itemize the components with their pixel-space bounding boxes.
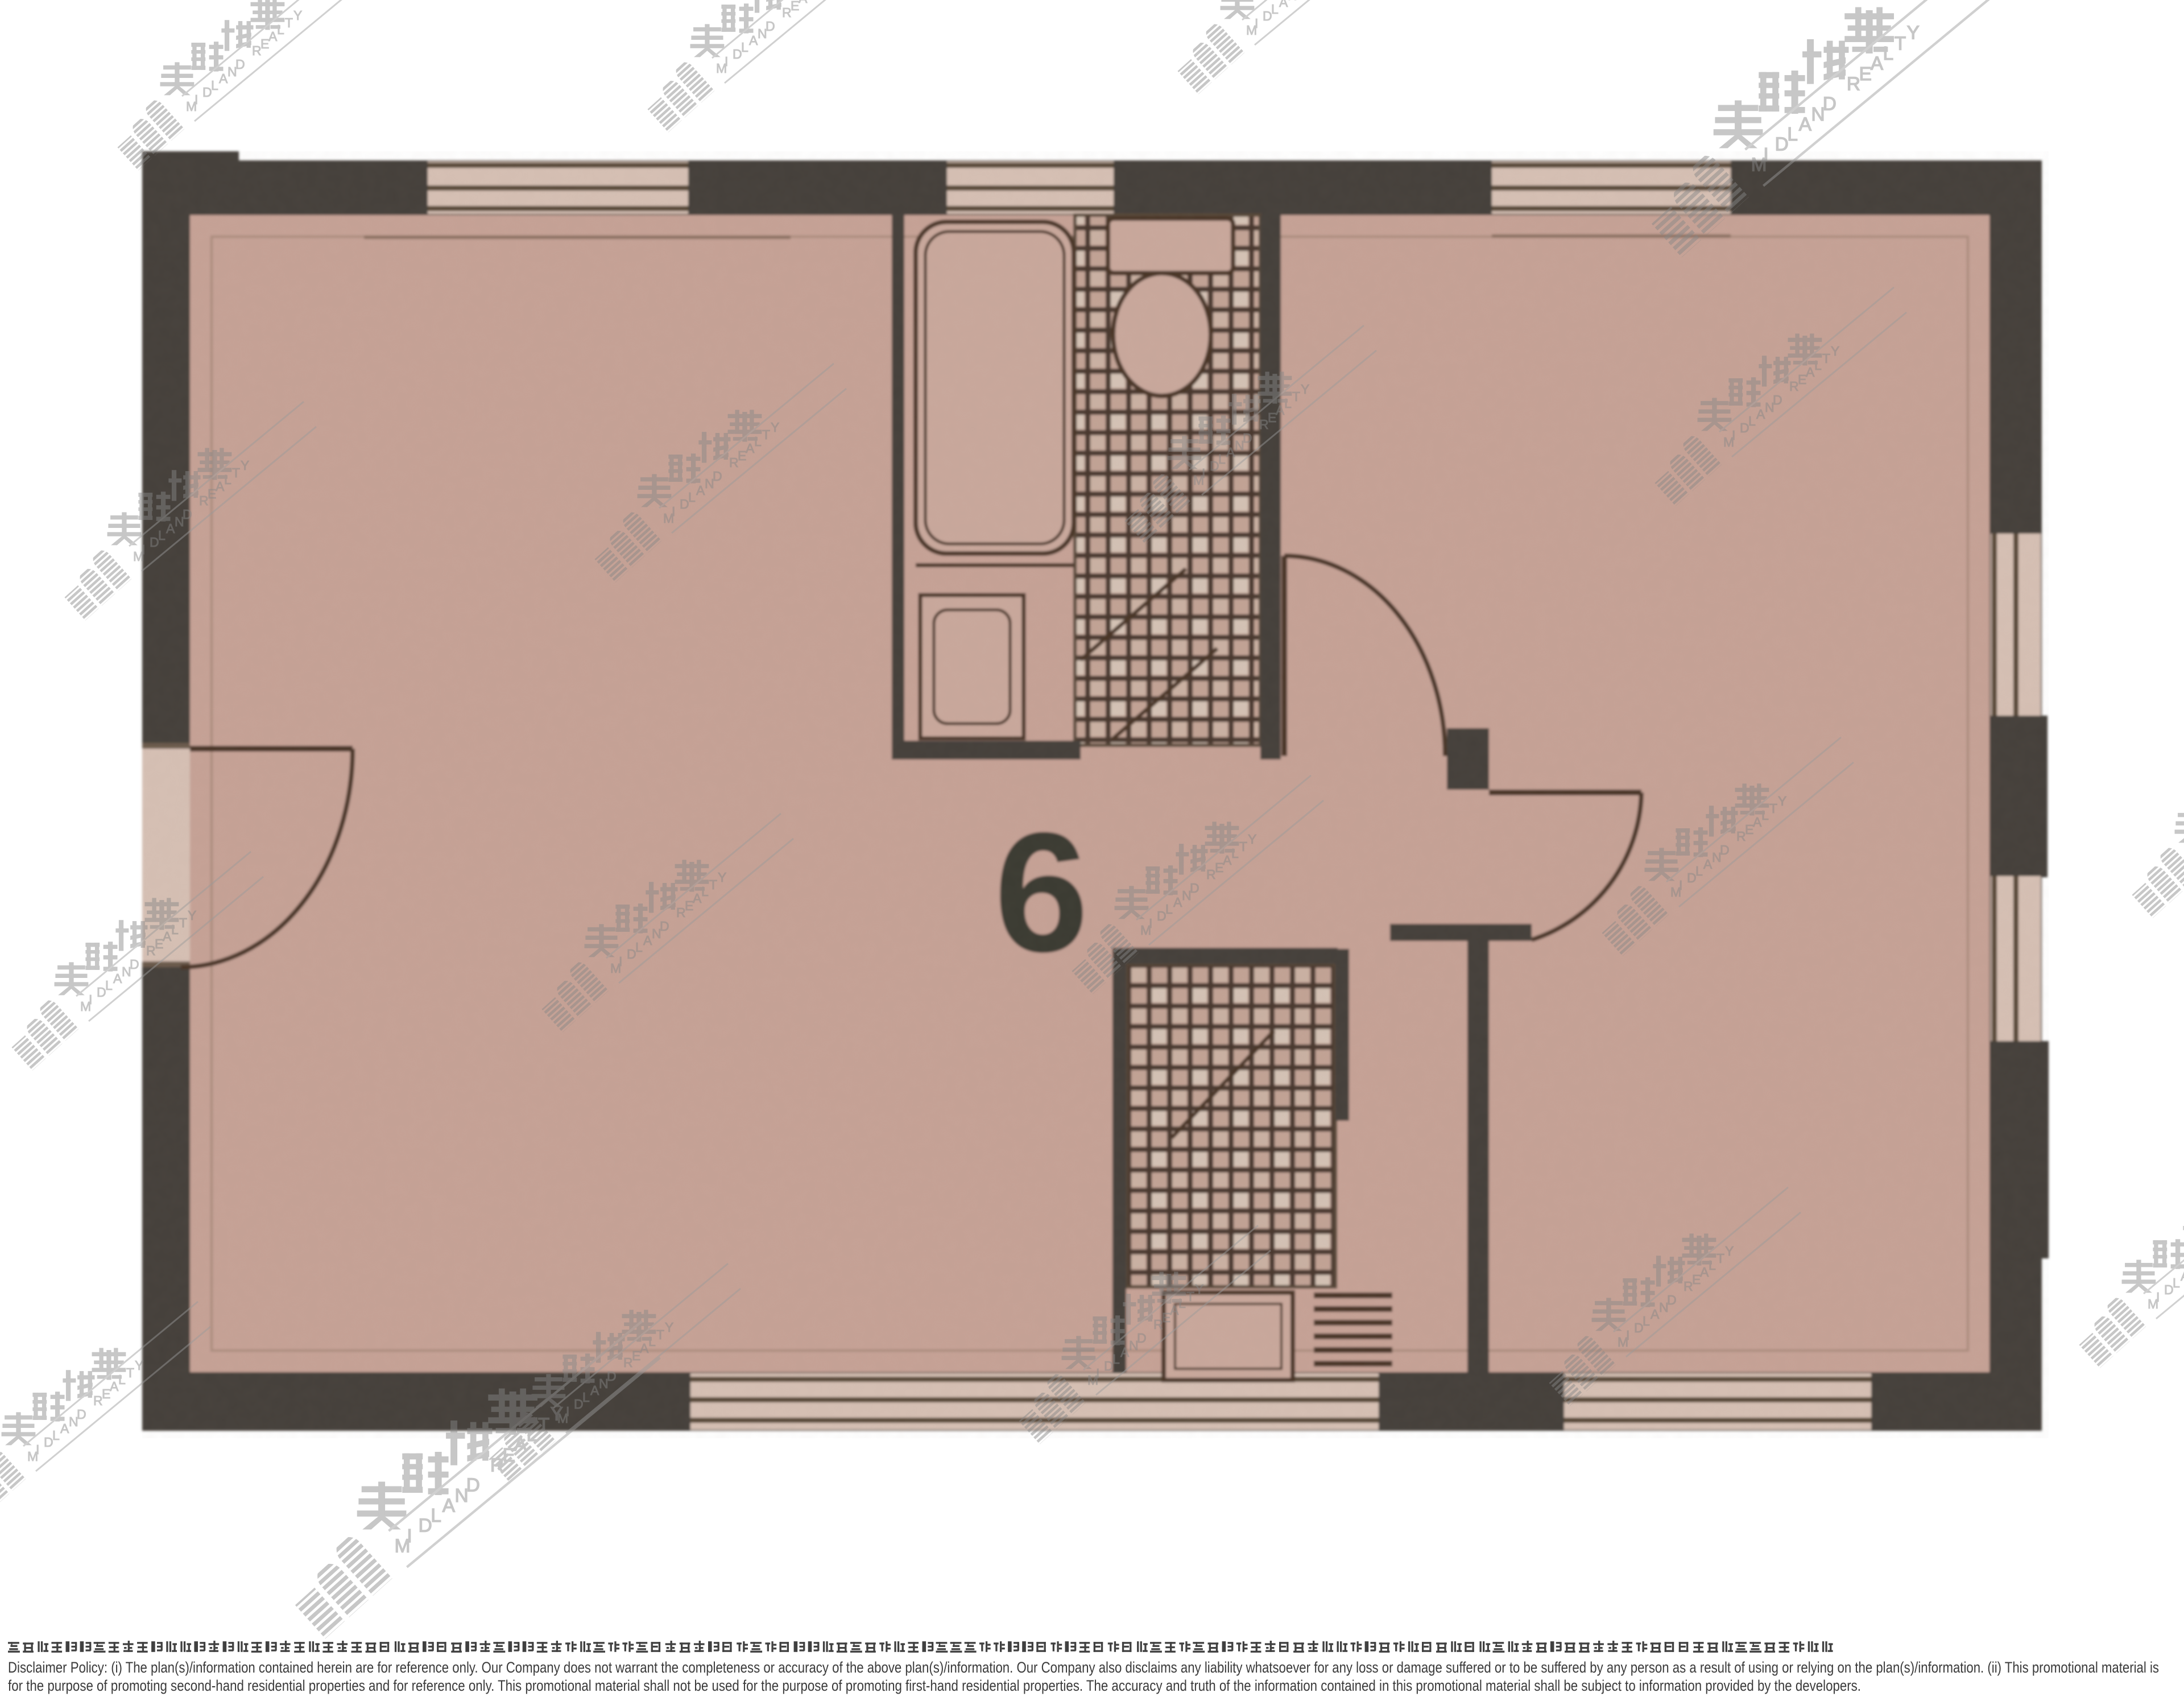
svg-text:Disclaimer Policy: (i) The pla: Disclaimer Policy: (i) The plan(s)/infor… — [8, 1659, 2159, 1676]
svg-text:for the purpose of promoting s: for the purpose of promoting second-hand… — [8, 1677, 1861, 1694]
